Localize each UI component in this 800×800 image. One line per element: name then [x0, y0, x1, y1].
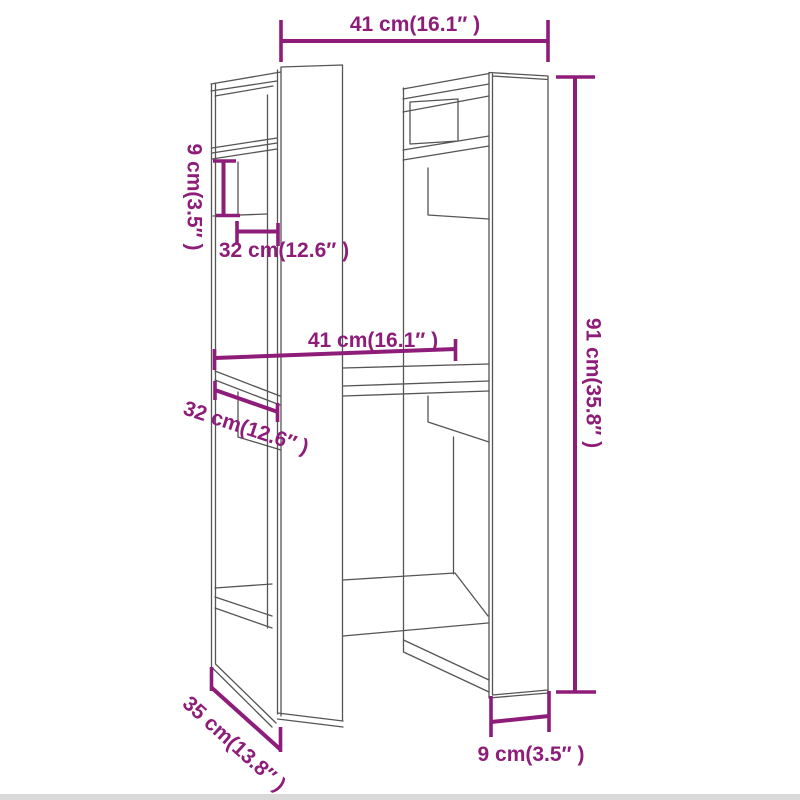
dimension-label-overall-height: 91 cm(35.8″ ) [582, 318, 605, 448]
dimension-label-base-panel-width: 9 cm(3.5″ ) [478, 743, 585, 766]
dimension-label-lower-inner-depth: 32 cm(12.6″ ) [180, 397, 311, 459]
dimension-base-panel-width: 9 cm(3.5″ ) [478, 691, 585, 766]
furniture-line-art [211, 65, 548, 727]
dimension-label-top-width: 41 cm(16.1″ ) [350, 13, 480, 36]
left-panel [212, 83, 277, 727]
dimension-diagram: 41 cm(16.1″ ) 9 cm(3.5″ ) 32 cm(12.6″ ) … [0, 0, 800, 800]
dimension-lower-inner-depth: 32 cm(12.6″ ) [180, 381, 311, 459]
left-shelves [211, 72, 281, 628]
dimension-label-left-gap-height: 9 cm(3.5″ ) [183, 144, 206, 251]
right-shelves [343, 74, 489, 443]
right-panel [489, 73, 548, 699]
dimension-top-width: 41 cm(16.1″ ) [281, 13, 548, 62]
dimension-upper-inner-depth: 32 cm(12.6″ ) [219, 221, 349, 262]
center-panel [278, 65, 344, 727]
dimension-label-upper-inner-depth: 32 cm(12.6″ ) [219, 239, 349, 262]
page-bottom-strip [0, 794, 800, 800]
dimension-label-middle-width: 41 cm(16.1″ ) [308, 329, 438, 352]
dimension-base-depth: 35 cm(13.8″ ) [178, 667, 290, 796]
dimension-middle-width: 41 cm(16.1″ ) [215, 329, 457, 370]
dimension-overall-height: 91 cm(35.8″ ) [556, 77, 605, 692]
bottom-shelf [343, 573, 489, 692]
